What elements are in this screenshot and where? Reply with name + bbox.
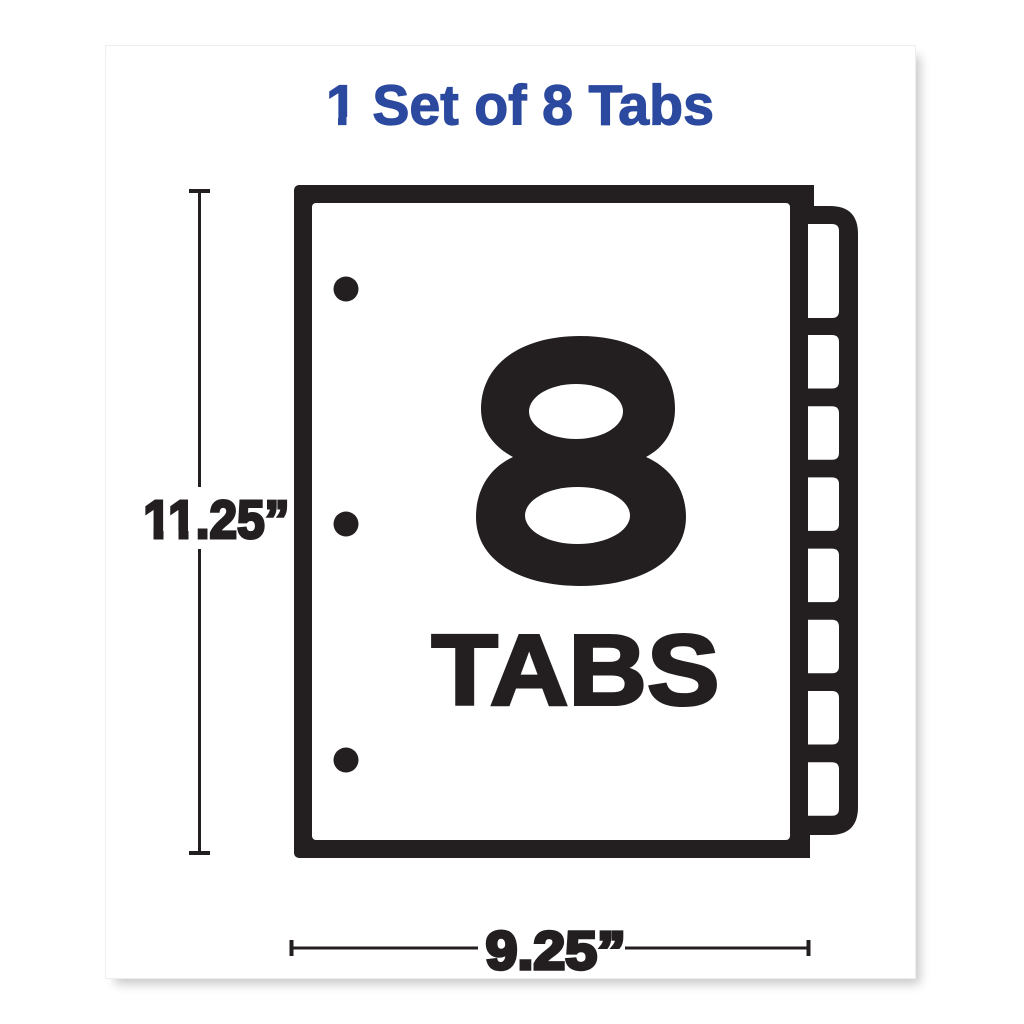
svg-text:9.25”: 9.25”: [486, 921, 626, 981]
svg-text:1 Set of 8 Tabs: 1 Set of 8 Tabs: [326, 74, 714, 138]
svg-text:TABS: TABS: [432, 615, 720, 727]
